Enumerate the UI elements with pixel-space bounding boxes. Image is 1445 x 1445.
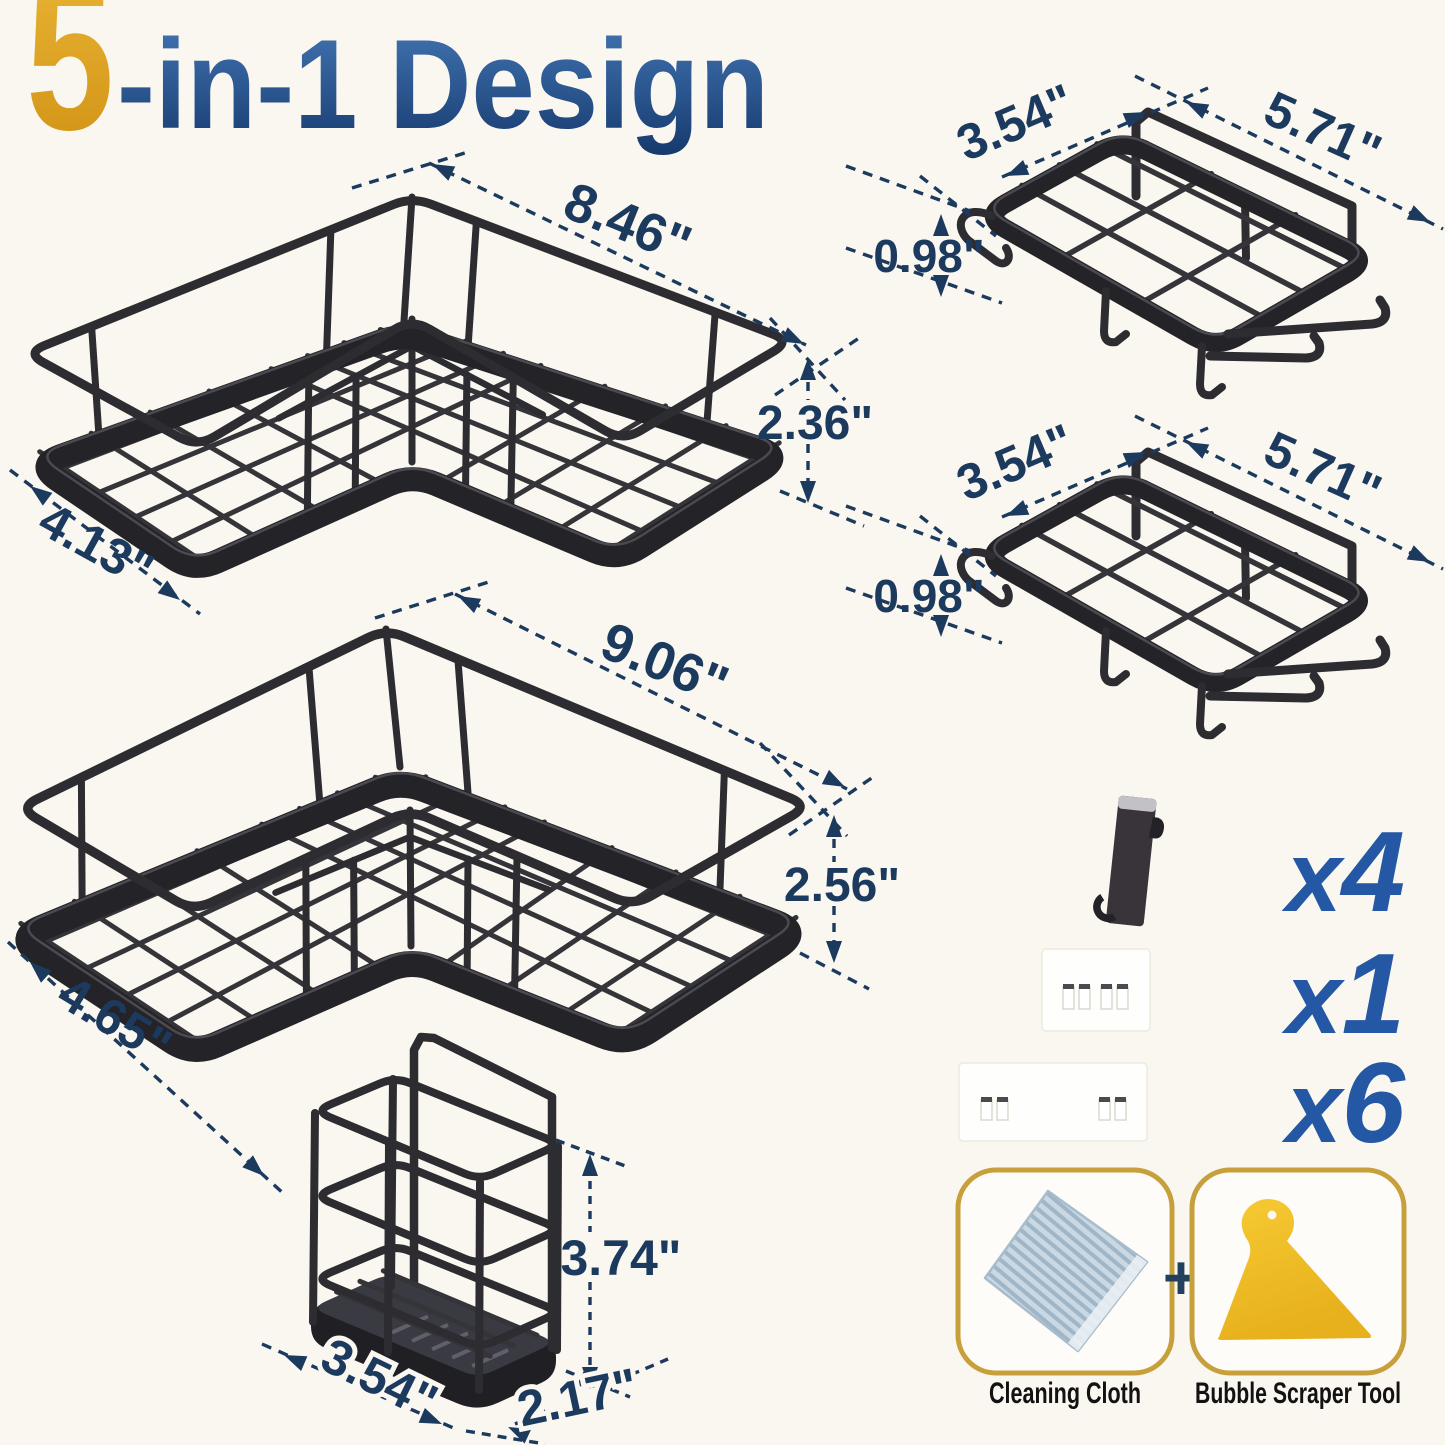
svg-text:x1: x1 — [1281, 931, 1405, 1058]
svg-text:2.56": 2.56" — [784, 859, 900, 912]
svg-text:x4: x4 — [1281, 809, 1405, 936]
svg-text:2.36": 2.36" — [757, 397, 873, 450]
svg-text:0.98": 0.98" — [873, 230, 984, 282]
svg-text:Bubble Scraper Tool: Bubble Scraper Tool — [1195, 1377, 1401, 1410]
svg-text:-in-1 Design: -in-1 Design — [117, 13, 769, 155]
svg-text:Cleaning Cloth: Cleaning Cloth — [989, 1377, 1141, 1410]
svg-text:x6: x6 — [1281, 1040, 1407, 1167]
svg-text:3.74": 3.74" — [560, 1230, 681, 1286]
svg-text:5: 5 — [26, 0, 114, 174]
svg-text:0.98": 0.98" — [873, 570, 984, 622]
